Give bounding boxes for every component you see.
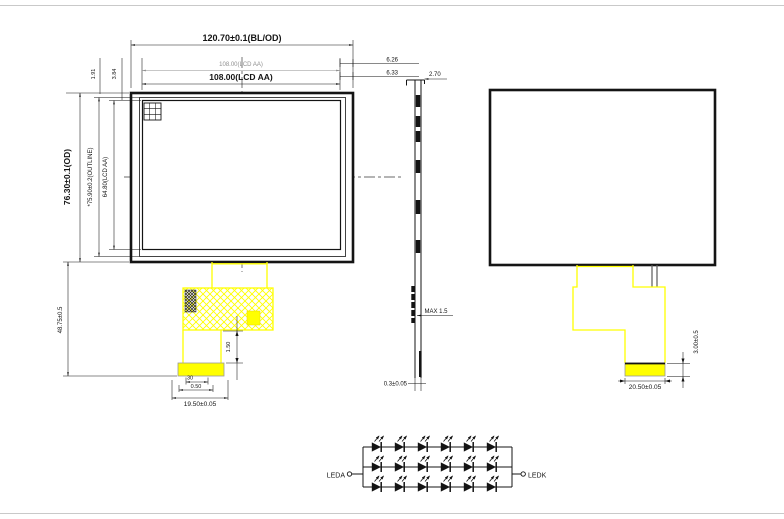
led-symbol [487, 476, 499, 492]
dim-margin-right-1-label: 6.26 [386, 58, 398, 64]
led-symbol [418, 476, 430, 492]
dim-fpc-length-label: 48.75±0.5 [58, 306, 64, 333]
dim-corner-offset-1: 1.91 [91, 58, 100, 94]
led-symbol [395, 476, 407, 492]
side-components [416, 95, 420, 253]
led-array [372, 436, 499, 492]
dim-margin-right-2-label: 6.33 [386, 71, 398, 77]
led-symbol [418, 456, 430, 472]
fpc-connector [178, 363, 224, 376]
led-symbol [464, 456, 476, 472]
dim-component-height: MAX 1.5 [417, 309, 453, 316]
anode-terminal [347, 472, 351, 476]
dim-back-connector-width: 20.50±0.05 [618, 378, 672, 391]
dim-fpc-thickness-label: 0.3±0.05 [384, 382, 408, 388]
side-view: 2.70 MAX 1.5 0.3±0.05 [384, 72, 453, 391]
dim-component-height-label: MAX 1.5 [424, 309, 448, 315]
fpc-pad [247, 311, 260, 325]
led-symbol [372, 436, 384, 452]
led-symbol [418, 436, 430, 452]
dim-width-aa-small-label: 108.00(LCD AA) [219, 62, 263, 68]
dim-fpc-thickness: 0.3±0.05 [384, 377, 426, 391]
dim-width-od-label: 120.70±0.1(BL/OD) [203, 33, 282, 43]
led-symbol [487, 436, 499, 452]
dim-margin-right-2: 6.33 [340, 71, 419, 81]
led-cathode-label: LEDK [528, 473, 547, 480]
dim-connector-width-label: 19.50±0.05 [184, 401, 217, 408]
dim-back-connector-height-label: 3.00±0.5 [694, 330, 700, 354]
led-symbol [395, 436, 407, 452]
back-fpc-outline [573, 265, 665, 363]
front-fpc: 1.50 30 0.50 19.50±0.05 [172, 262, 273, 408]
led-symbol [464, 436, 476, 452]
led-circuit: LEDA LEDK [327, 436, 547, 492]
dim-thickness: 2.70 [425, 72, 448, 79]
dim-fpc-tail-label: 1.50 [226, 342, 232, 353]
dim-pin-pitch-label: 0.50 [191, 384, 202, 390]
dim-height-od: 76.30±0.1(OD) [62, 93, 129, 262]
cathode-terminal [521, 472, 525, 476]
module-outline [131, 93, 353, 262]
engineering-drawing-sheet: 120.70±0.1(BL/OD) 108.00(LCD AA) 108.00(… [0, 0, 784, 519]
led-symbol [441, 476, 453, 492]
led-anode-label: LEDA [327, 473, 346, 480]
side-fpc-fold [419, 351, 422, 377]
back-view: 3.00±0.5 20.50±0.05 [490, 90, 715, 391]
dim-back-connector-height: 3.00±0.5 [667, 330, 700, 388]
led-symbol [372, 456, 384, 472]
side-profile [407, 80, 425, 378]
led-symbol [487, 456, 499, 472]
dim-pin-count-label: 30 [187, 376, 193, 382]
back-fpc-connector [625, 363, 665, 376]
fpc-component [185, 290, 196, 312]
fpc-neck [212, 262, 267, 288]
dim-corner-offset-1-label: 1.91 [91, 69, 97, 80]
dim-corner-offset-2: 3.84 [112, 58, 122, 100]
dim-fpc-length: 48.75±0.5 [58, 262, 177, 376]
dim-pin-pitch: 0.50 [179, 384, 213, 392]
dim-margin-right-1: 6.26 [340, 58, 419, 68]
led-symbol [441, 436, 453, 452]
led-symbol [464, 476, 476, 492]
back-outline [490, 90, 715, 265]
dim-width-aa: 108.00(LCD AA) [142, 72, 340, 84]
led-symbol [441, 456, 453, 472]
dim-height-outline-label: *75.90±0.2(OUTLINE) [88, 148, 94, 207]
dim-height-aa-label: 64.80(LCD AA) [103, 157, 109, 197]
dim-back-connector-width-label: 20.50±0.05 [629, 384, 662, 391]
dim-corner-offset-2-label: 3.84 [112, 69, 118, 80]
dim-thickness-label: 2.70 [429, 72, 441, 78]
led-symbol [372, 476, 384, 492]
dim-height-od-label: 76.30±0.1(OD) [62, 149, 72, 205]
led-symbol [395, 456, 407, 472]
fpc-tail [183, 330, 221, 363]
back-fpc-stub [652, 265, 657, 287]
dim-width-aa-label: 108.00(LCD AA) [209, 72, 273, 82]
